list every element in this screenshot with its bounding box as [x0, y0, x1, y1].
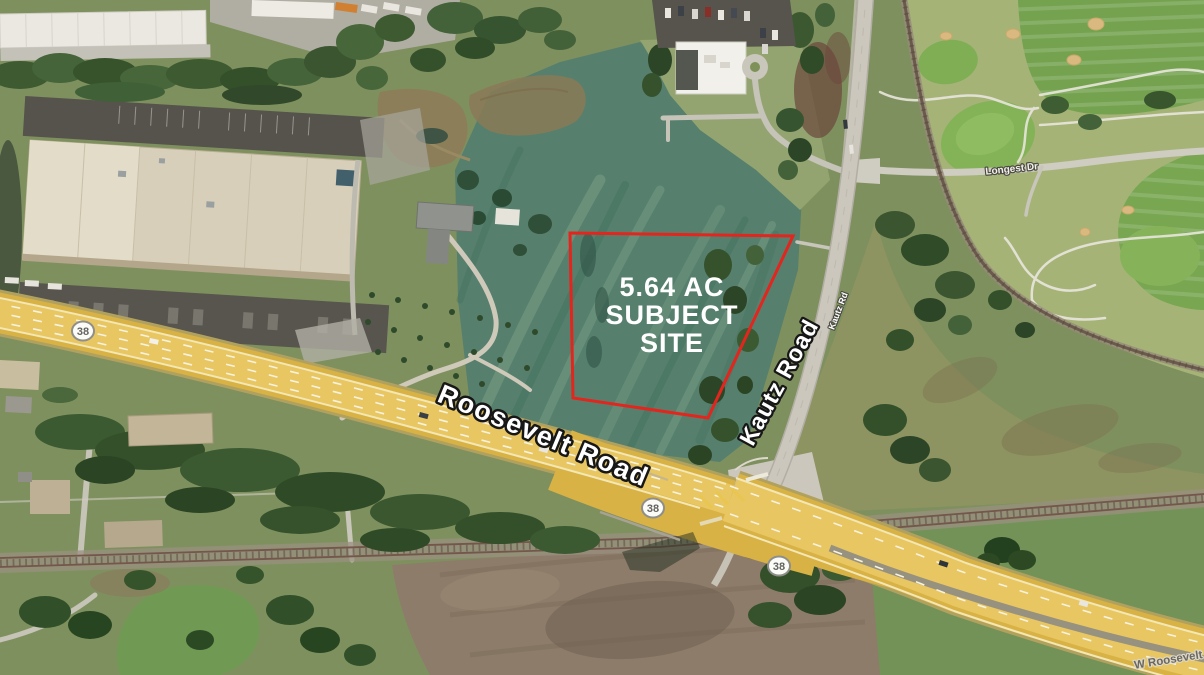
route-38-shield: 38 [768, 557, 790, 576]
warehouse [22, 140, 361, 282]
office-parking [652, 0, 796, 48]
svg-text:SUBJECT: SUBJECT [605, 300, 738, 330]
svg-text:38: 38 [77, 326, 89, 338]
small-building [0, 360, 40, 390]
aerial-map: 5.64 AC SUBJECT SITE Roosevelt Road Kaut… [0, 0, 1204, 675]
svg-text:38: 38 [647, 503, 659, 515]
svg-text:38: 38 [773, 561, 785, 573]
shed [495, 208, 520, 226]
building-roof [251, 0, 334, 19]
building-top-strip [0, 10, 206, 48]
svg-text:5.64 AC: 5.64 AC [619, 272, 724, 302]
svg-text:SITE: SITE [640, 328, 704, 358]
route-38-shield: 38 [72, 322, 94, 341]
route-38-shield: 38 [642, 499, 664, 518]
